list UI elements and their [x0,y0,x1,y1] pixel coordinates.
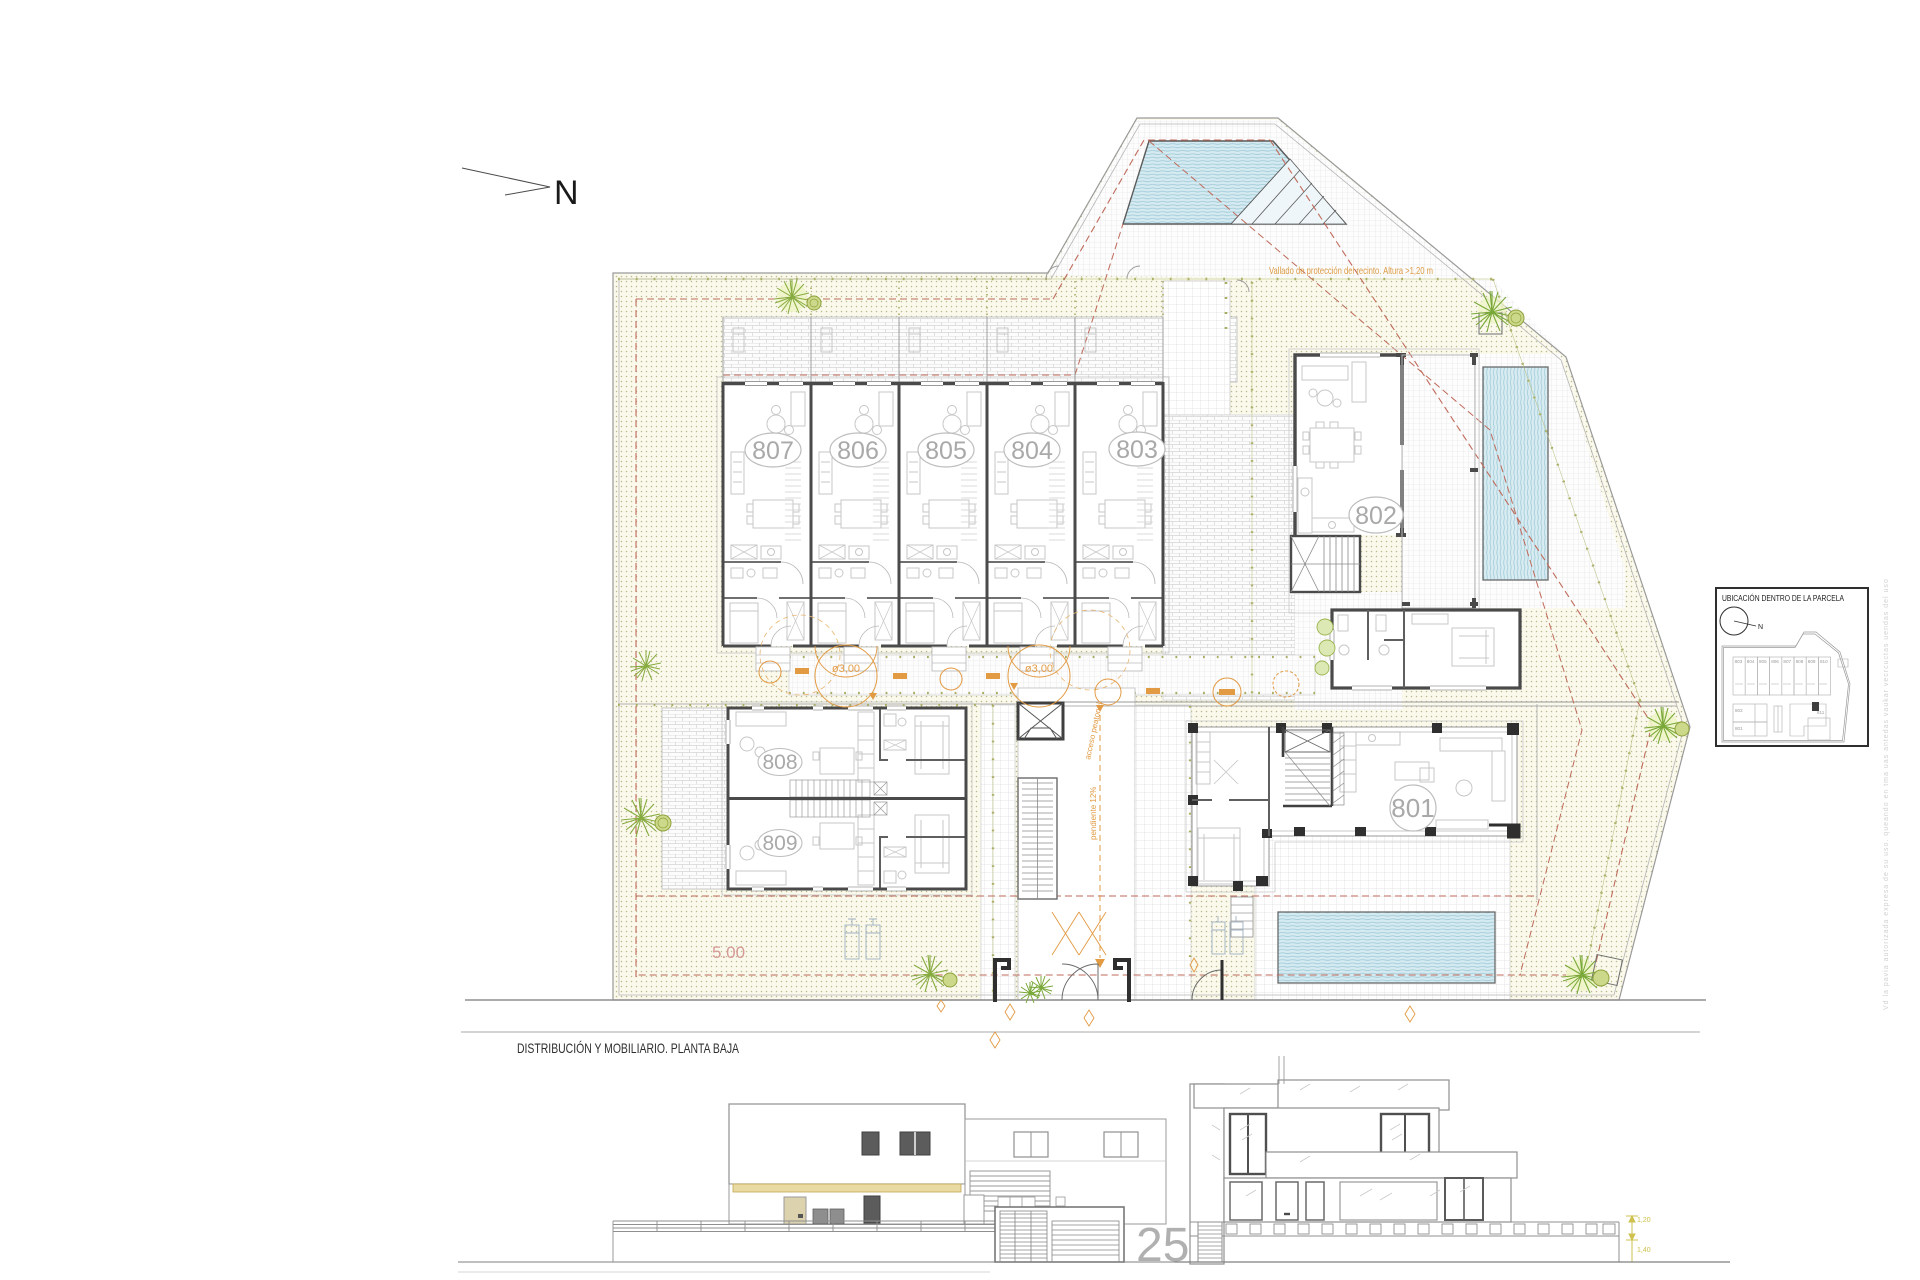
svg-text:808: 808 [762,751,797,774]
svg-text:803: 803 [1735,659,1743,664]
svg-text:N: N [554,174,579,212]
svg-text:801: 801 [1735,726,1743,731]
svg-text:807: 807 [1783,659,1791,664]
svg-text:802: 802 [1355,502,1397,530]
svg-text:Vd la pavia autorizada expresa: Vd la pavia autorizada expresa de su uso… [1883,578,1890,1010]
svg-text:ø3,00: ø3,00 [1025,663,1053,675]
svg-text:802: 802 [1735,708,1743,713]
svg-text:N: N [1758,624,1763,631]
svg-text:804: 804 [1747,659,1755,664]
svg-text:803: 803 [1116,436,1158,464]
svg-text:1,20: 1,20 [1637,1217,1651,1224]
svg-text:pendiente 12%: pendiente 12% [1089,787,1098,840]
svg-text:UBICACIÓN DENTRO DE LA PARCELA: UBICACIÓN DENTRO DE LA PARCELA [1722,594,1845,603]
svg-text:ø3,00: ø3,00 [832,663,860,675]
svg-text:804: 804 [1011,437,1053,465]
svg-text:811: 811 [1817,710,1825,715]
svg-text:807: 807 [752,437,794,465]
svg-text:809: 809 [762,832,797,855]
svg-text:1,40: 1,40 [1637,1247,1651,1254]
svg-text:DISTRIBUCIÓN Y MOBILIARIO. PLA: DISTRIBUCIÓN Y MOBILIARIO. PLANTA BAJA [517,1040,739,1056]
svg-text:Vallado de protección del reci: Vallado de protección del recinto. Altur… [1269,265,1433,277]
svg-text:5.00: 5.00 [712,943,745,962]
svg-text:809: 809 [1808,659,1816,664]
svg-text:805: 805 [1759,659,1767,664]
svg-text:806: 806 [1771,659,1779,664]
svg-text:806: 806 [837,437,879,465]
svg-text:805: 805 [925,437,967,465]
svg-text:801: 801 [1391,793,1434,823]
svg-text:810: 810 [1820,659,1828,664]
svg-text:25: 25 [1136,1219,1189,1272]
svg-text:808: 808 [1796,659,1804,664]
